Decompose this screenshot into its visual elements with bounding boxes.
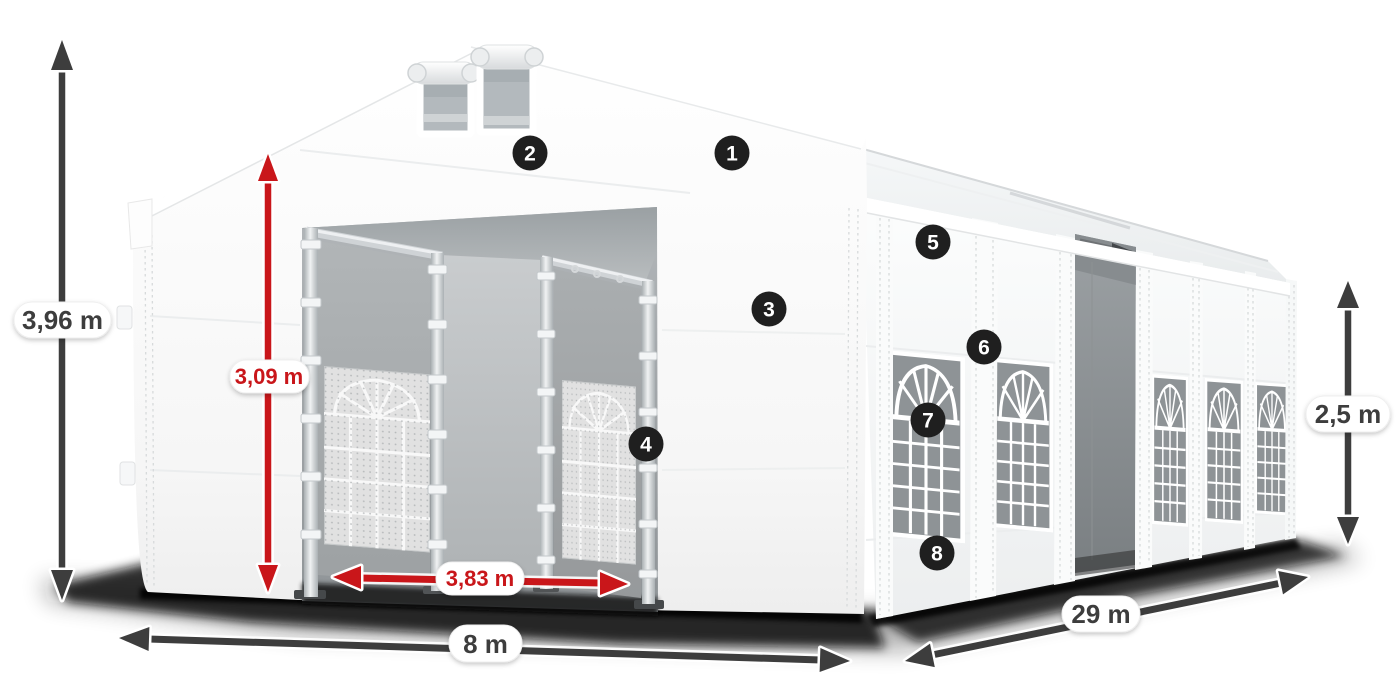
side-door-opening [1075,234,1136,576]
callout-8-number: 8 [931,543,943,566]
callout-6-number: 6 [978,337,990,360]
entrance-opening [294,207,664,616]
callout-3[interactable]: 3 [752,292,787,327]
callout-7-number: 7 [922,410,934,433]
gable-vent-right [471,45,543,132]
door-panel-window-1 [324,366,430,553]
entrance-door-frame-1 [294,228,451,599]
callout-1[interactable]: 1 [715,136,750,171]
side-window-5 [1256,384,1288,514]
door-width-value: 3,83 m [446,566,515,591]
label-door-height: 3,09 m [230,360,309,393]
label-front-width: 8 m [449,625,522,662]
side-window-4 [1206,380,1242,523]
door-post [304,228,318,597]
wall-tab [120,462,135,485]
door-panel-window-2 [562,380,636,565]
arrowhead-left [119,627,149,651]
callout-1-number: 1 [726,143,738,166]
eave-corner-cap [128,199,152,249]
label-side-length: 29 m [1062,596,1140,632]
callout-5[interactable]: 5 [916,225,951,260]
callout-2[interactable]: 2 [513,136,548,171]
arrowhead-down [1337,517,1359,544]
diagram-canvas: 1 2 3 4 5 6 7 8 [0,0,1400,700]
callout-4-number: 4 [640,434,652,457]
arrowhead-up [51,40,73,70]
callout-6[interactable]: 6 [967,330,1002,365]
arrowhead-right [820,648,850,672]
callout-3-number: 3 [763,299,775,322]
label-door-width: 3,83 m [436,562,524,595]
arrowhead-right [1278,571,1308,594]
callout-7[interactable]: 7 [911,403,946,438]
callout-4[interactable]: 4 [629,427,664,462]
side-window-1 [889,352,962,541]
side-height-value: 2,5 m [1315,399,1382,429]
gable-vent-left [408,62,480,134]
side-window-3 [1153,376,1187,525]
label-side-height: 2,5 m [1306,396,1390,432]
door-height-value: 3,09 m [235,364,304,389]
wall-tab [117,306,132,329]
side-window-2 [995,360,1051,530]
front-width-value: 8 m [463,629,508,659]
door-post [540,257,553,589]
callout-2-number: 2 [524,143,536,166]
callout-5-number: 5 [927,232,939,255]
label-total-height: 3,96 m [14,302,111,338]
tent-side-wall [827,139,1297,619]
callout-8[interactable]: 8 [920,536,955,571]
arrowhead-up [1337,281,1359,308]
side-length-value: 29 m [1071,599,1130,629]
tent-dimensions-diagram: 1 2 3 4 5 6 7 8 [0,0,1400,700]
tent-front-gable [117,36,867,616]
total-height-value: 3,96 m [22,305,103,335]
